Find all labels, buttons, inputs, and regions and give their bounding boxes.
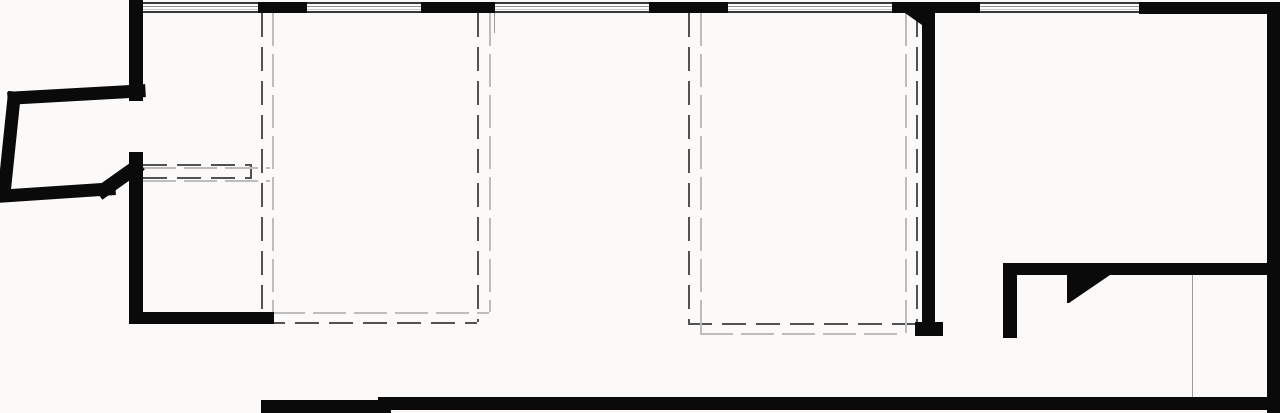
wall-bay-diagonal (104, 168, 135, 190)
wall-bay-left (4, 98, 14, 194)
wall-bay-bottom (4, 189, 109, 196)
floor-plan-canvas (0, 0, 1280, 413)
slanted-walls-layer (0, 0, 1280, 413)
wall-angled-return (1067, 275, 1110, 303)
wall-bay-top (14, 91, 139, 98)
wall-tee-bevel (905, 13, 922, 25)
